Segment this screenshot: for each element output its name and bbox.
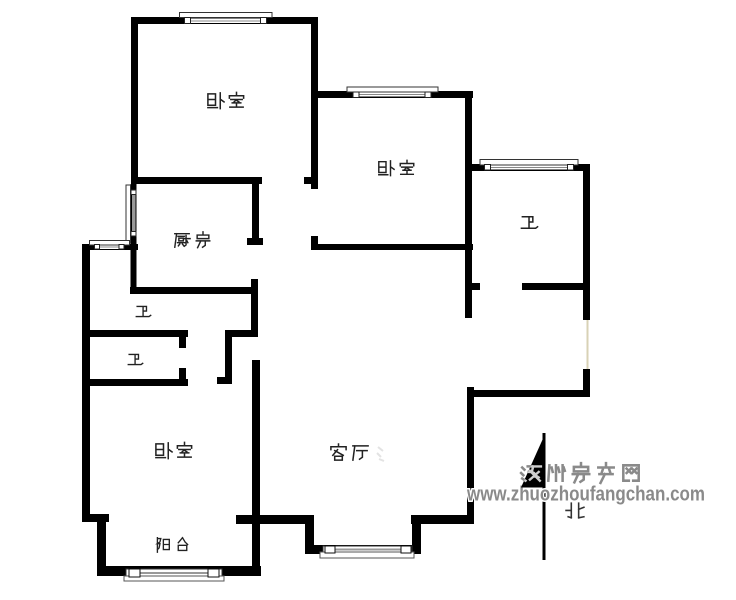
svg-text:www.zhuozhoufangchan.com: www.zhuozhoufangchan.com — [466, 484, 705, 506]
